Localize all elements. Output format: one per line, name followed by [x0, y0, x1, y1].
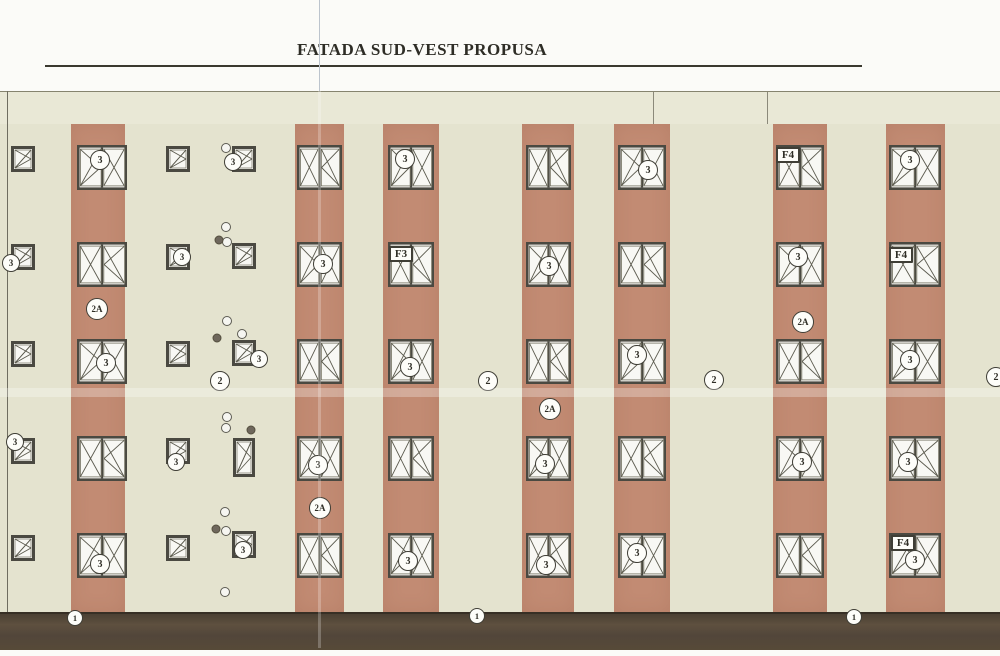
window-small: [166, 146, 190, 172]
window-large: [297, 339, 342, 384]
material-callout-3: 3: [788, 247, 808, 267]
window-small: [11, 535, 35, 561]
material-callout-3: 3: [400, 357, 420, 377]
facade-left-edge-line: [7, 91, 8, 612]
window-small: [232, 243, 256, 269]
window-large: [77, 242, 127, 287]
window-small: [11, 146, 35, 172]
material-callout-3: 3: [224, 153, 242, 171]
vent-dot-light: [221, 222, 231, 232]
material-callout-3: 3: [2, 254, 20, 272]
material-callout-2: 2: [478, 371, 498, 391]
material-callout-3: 3: [900, 350, 920, 370]
material-callout-3: 3: [905, 550, 925, 570]
vent-dot-light: [222, 316, 232, 326]
vent-dot-dark: [247, 426, 256, 435]
facade-wall: [0, 124, 1000, 612]
material-callout-3: 3: [6, 433, 24, 451]
material-callout-3: 3: [167, 453, 185, 471]
vent-dot-light: [222, 237, 232, 247]
material-callout-2: 2: [210, 371, 230, 391]
window-large: [776, 533, 824, 578]
facade-elevation-sheet: FATADA SUD-VEST PROPUSA 3333333333333333…: [0, 0, 1000, 656]
parapet-joint-line: [653, 92, 654, 124]
material-callout-3: 3: [234, 541, 252, 559]
window-small: [233, 438, 255, 477]
vent-dot-light: [222, 412, 232, 422]
material-callout-3: 3: [90, 554, 110, 574]
window-large: [776, 339, 824, 384]
material-callout-1: 1: [67, 610, 83, 626]
window-large: [618, 242, 666, 287]
material-callout-3: 3: [90, 150, 110, 170]
material-callout-1: 1: [846, 609, 862, 625]
window-small: [11, 341, 35, 367]
material-callout-3: 3: [539, 256, 559, 276]
vent-dot-light: [221, 143, 231, 153]
window-large: [77, 436, 127, 481]
window-large: [526, 145, 571, 190]
window-type-label-f4: F4: [891, 535, 915, 551]
material-callout-3: 3: [96, 353, 116, 373]
vent-dot-light: [237, 329, 247, 339]
material-callout-2a: 2A: [309, 497, 331, 519]
title-underline: [45, 65, 862, 67]
material-callout-3: 3: [898, 452, 918, 472]
vent-dot-light: [221, 423, 231, 433]
material-callout-3: 3: [395, 149, 415, 169]
vent-dot-dark: [215, 236, 224, 245]
material-callout-3: 3: [627, 543, 647, 563]
window-large: [297, 533, 342, 578]
material-callout-3: 3: [638, 160, 658, 180]
vent-dot-dark: [212, 525, 221, 534]
material-callout-1: 1: [469, 608, 485, 624]
window-type-label-f4: F4: [776, 147, 800, 163]
vent-dot-light: [221, 526, 231, 536]
material-callout-3: 3: [398, 551, 418, 571]
material-callout-2a: 2A: [792, 311, 814, 333]
facade-parapet-band: [0, 91, 1000, 126]
material-callout-3: 3: [173, 248, 191, 266]
material-callout-2a: 2A: [539, 398, 561, 420]
window-type-label-f4: F4: [889, 247, 913, 263]
material-callout-3: 3: [308, 455, 328, 475]
material-callout-2a: 2A: [86, 298, 108, 320]
window-large: [297, 145, 342, 190]
window-type-label-f3: F3: [389, 246, 413, 262]
window-large: [388, 436, 434, 481]
material-callout-3: 3: [792, 452, 812, 472]
material-callout-3: 3: [536, 555, 556, 575]
material-callout-2: 2: [986, 367, 1000, 387]
window-small: [166, 535, 190, 561]
vent-dot-dark: [213, 334, 222, 343]
window-large: [526, 339, 571, 384]
material-callout-3: 3: [250, 350, 268, 368]
material-callout-3: 3: [900, 150, 920, 170]
material-callout-3: 3: [627, 345, 647, 365]
material-callout-2: 2: [704, 370, 724, 390]
drawing-title: FATADA SUD-VEST PROPUSA: [297, 40, 502, 60]
material-callout-3: 3: [313, 254, 333, 274]
window-large: [618, 436, 666, 481]
window-small: [166, 341, 190, 367]
vent-dot-light: [220, 587, 230, 597]
paper-fold-line: [319, 0, 320, 91]
parapet-joint-line: [767, 92, 768, 124]
vent-dot-light: [220, 507, 230, 517]
material-callout-3: 3: [535, 454, 555, 474]
